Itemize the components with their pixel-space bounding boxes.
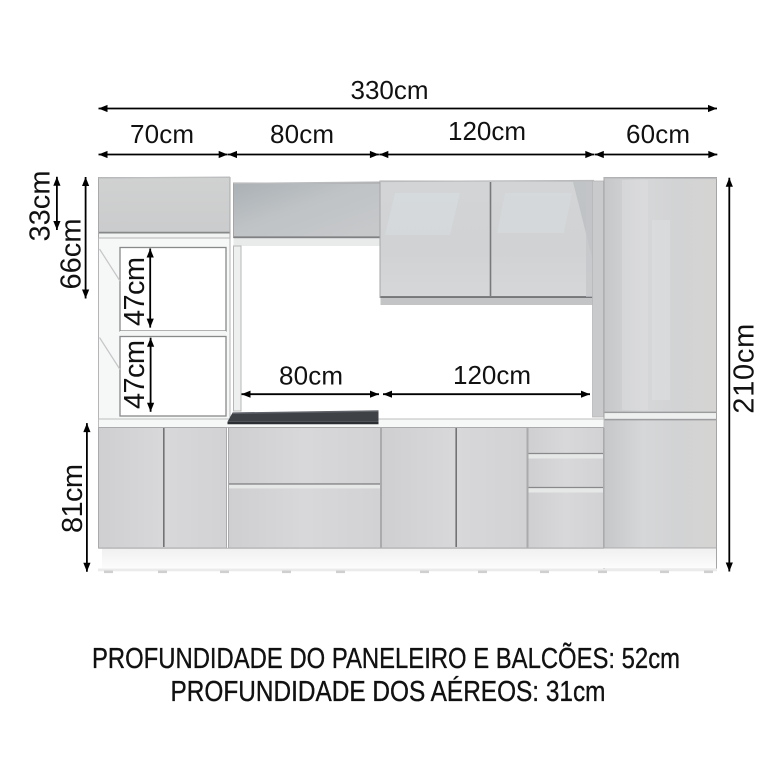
svg-text:70cm: 70cm [130, 119, 194, 149]
svg-text:47cm: 47cm [119, 340, 151, 409]
svg-text:120cm: 120cm [448, 116, 526, 146]
svg-text:330cm: 330cm [351, 75, 429, 105]
svg-text:47cm: 47cm [119, 257, 151, 326]
svg-text:81cm: 81cm [57, 464, 89, 533]
svg-text:210cm: 210cm [729, 324, 761, 414]
svg-text:60cm: 60cm [626, 119, 690, 149]
svg-text:120cm: 120cm [453, 360, 531, 390]
svg-text:80cm: 80cm [279, 361, 343, 391]
svg-text:33cm: 33cm [25, 171, 57, 242]
svg-text:66cm: 66cm [56, 219, 88, 290]
svg-text:80cm: 80cm [270, 119, 334, 149]
svg-text:PROFUNDIDADE DOS AÉREOS: 31cm: PROFUNDIDADE DOS AÉREOS: 31cm [171, 675, 606, 708]
svg-text:PROFUNDIDADE DO PANELEIRO E BA: PROFUNDIDADE DO PANELEIRO E BALCÕES: 52c… [92, 641, 680, 675]
